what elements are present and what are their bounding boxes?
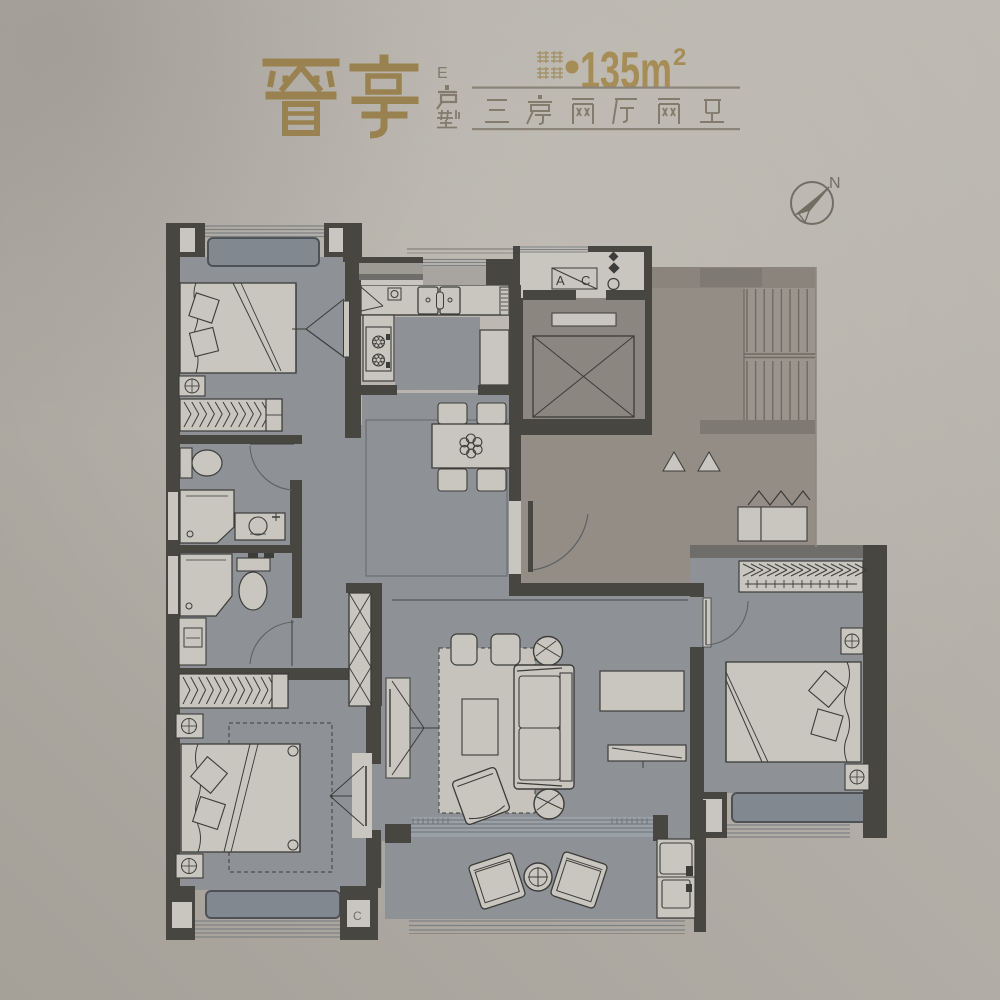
svg-text:E: E (437, 65, 448, 82)
svg-text:C: C (581, 273, 590, 288)
svg-text:N: N (829, 175, 841, 192)
svg-text:135m: 135m (580, 42, 672, 100)
svg-text:C: C (353, 909, 362, 923)
svg-text:A: A (556, 273, 565, 288)
svg-text:2: 2 (673, 44, 686, 71)
